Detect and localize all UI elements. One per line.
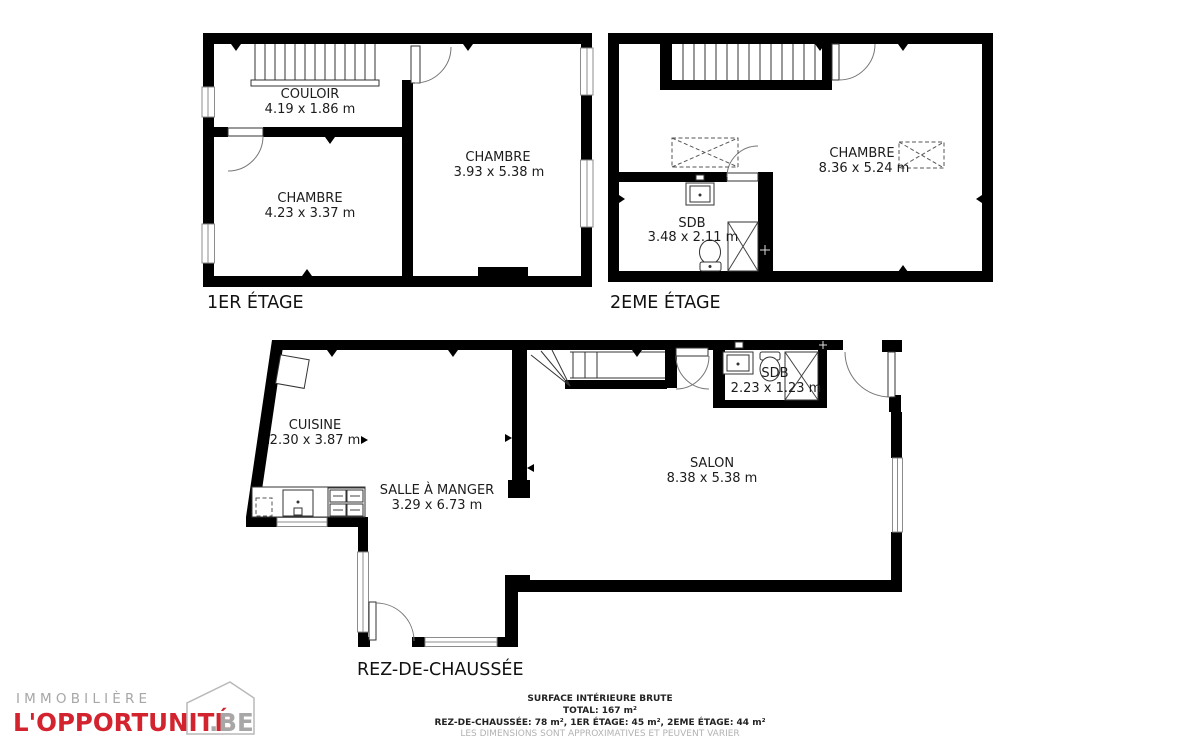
agency-logo: IMMOBILIÈRE L'OPPORTUNITÉ .BE	[13, 682, 254, 737]
room-label-chambre-1: CHAMBRE	[277, 191, 342, 206]
logo-opportunite-text: L'OPPORTUNITÉ	[13, 708, 231, 737]
surface-title: SURFACE INTÉRIEURE BRUTE	[527, 692, 672, 704]
stove-icon	[328, 488, 365, 517]
logo-immobiliere-text: IMMOBILIÈRE	[16, 690, 151, 707]
floor-label-first: 1ER ÉTAGE	[207, 291, 304, 313]
staircase-icon	[683, 44, 815, 80]
dimension-ticks	[262, 350, 757, 587]
dimension-ticks	[231, 44, 473, 276]
room-dims-chambre-1: 4.23 x 3.37 m	[265, 206, 356, 221]
room-label-cuisine: CUISINE	[289, 418, 341, 433]
floorplan-sheet: COULOIR 4.19 x 1.86 m CHAMBRE 4.23 x 3.3…	[0, 0, 1201, 750]
room-label-salon: SALON	[690, 456, 734, 471]
room-label-sdb: SDB	[761, 366, 788, 381]
kitchen-sink-icon	[283, 490, 313, 516]
floorplan-canvas: COULOIR 4.19 x 1.86 m CHAMBRE 4.23 x 3.3…	[0, 0, 1201, 750]
room-dims-chambre-2: 3.93 x 5.38 m	[454, 165, 545, 180]
room-dims-couloir: 4.19 x 1.86 m	[265, 102, 356, 117]
room-label-salle-a-manger: SALLE À MANGER	[380, 482, 494, 498]
room-label-couloir: COULOIR	[281, 87, 340, 102]
surface-total: TOTAL: 167 m²	[563, 706, 637, 716]
room-dims-salle-a-manger: 3.29 x 6.73 m	[392, 498, 483, 513]
room-dims-sdb: 3.48 x 2.11 m	[648, 230, 739, 245]
walls	[203, 33, 592, 287]
room-dims-cuisine: 2.30 x 3.87 m	[270, 433, 361, 448]
floor-plan-first-floor: COULOIR 4.19 x 1.86 m CHAMBRE 4.23 x 3.3…	[202, 33, 593, 313]
floor-plan-ground-floor: CUISINE 2.30 x 3.87 m SALLE À MANGER 3.2…	[246, 340, 903, 680]
floor-label-ground: REZ-DE-CHAUSSÉE	[357, 658, 524, 680]
surface-breakdown: REZ-DE-CHAUSSÉE: 78 m², 1ER ÉTAGE: 45 m²…	[434, 716, 765, 728]
surface-summary: SURFACE INTÉRIEURE BRUTE TOTAL: 167 m² R…	[434, 692, 765, 739]
room-dims-chambre: 8.36 x 5.24 m	[819, 161, 910, 176]
flue-icon	[276, 355, 310, 389]
room-dims-salon: 8.38 x 5.38 m	[667, 471, 758, 486]
floor-plan-second-floor: CHAMBRE 8.36 x 5.24 m SDB 3.48 x 2.11 m …	[608, 33, 993, 313]
room-label-chambre-2: CHAMBRE	[465, 150, 530, 165]
room-dims-sdb: 2.23 x 1.23 m	[731, 381, 822, 396]
room-label-sdb: SDB	[678, 216, 705, 231]
logo-be-text: .BE	[209, 708, 254, 737]
kitchen-counter	[252, 487, 365, 517]
chimney-breast	[478, 267, 528, 277]
surface-disclaimer: LES DIMENSIONS SONT APPROXIMATIVES ET PE…	[460, 729, 739, 739]
floor-label-second: 2EME ÉTAGE	[610, 291, 721, 313]
staircase-icon	[251, 44, 379, 86]
room-label-chambre: CHAMBRE	[829, 146, 894, 161]
